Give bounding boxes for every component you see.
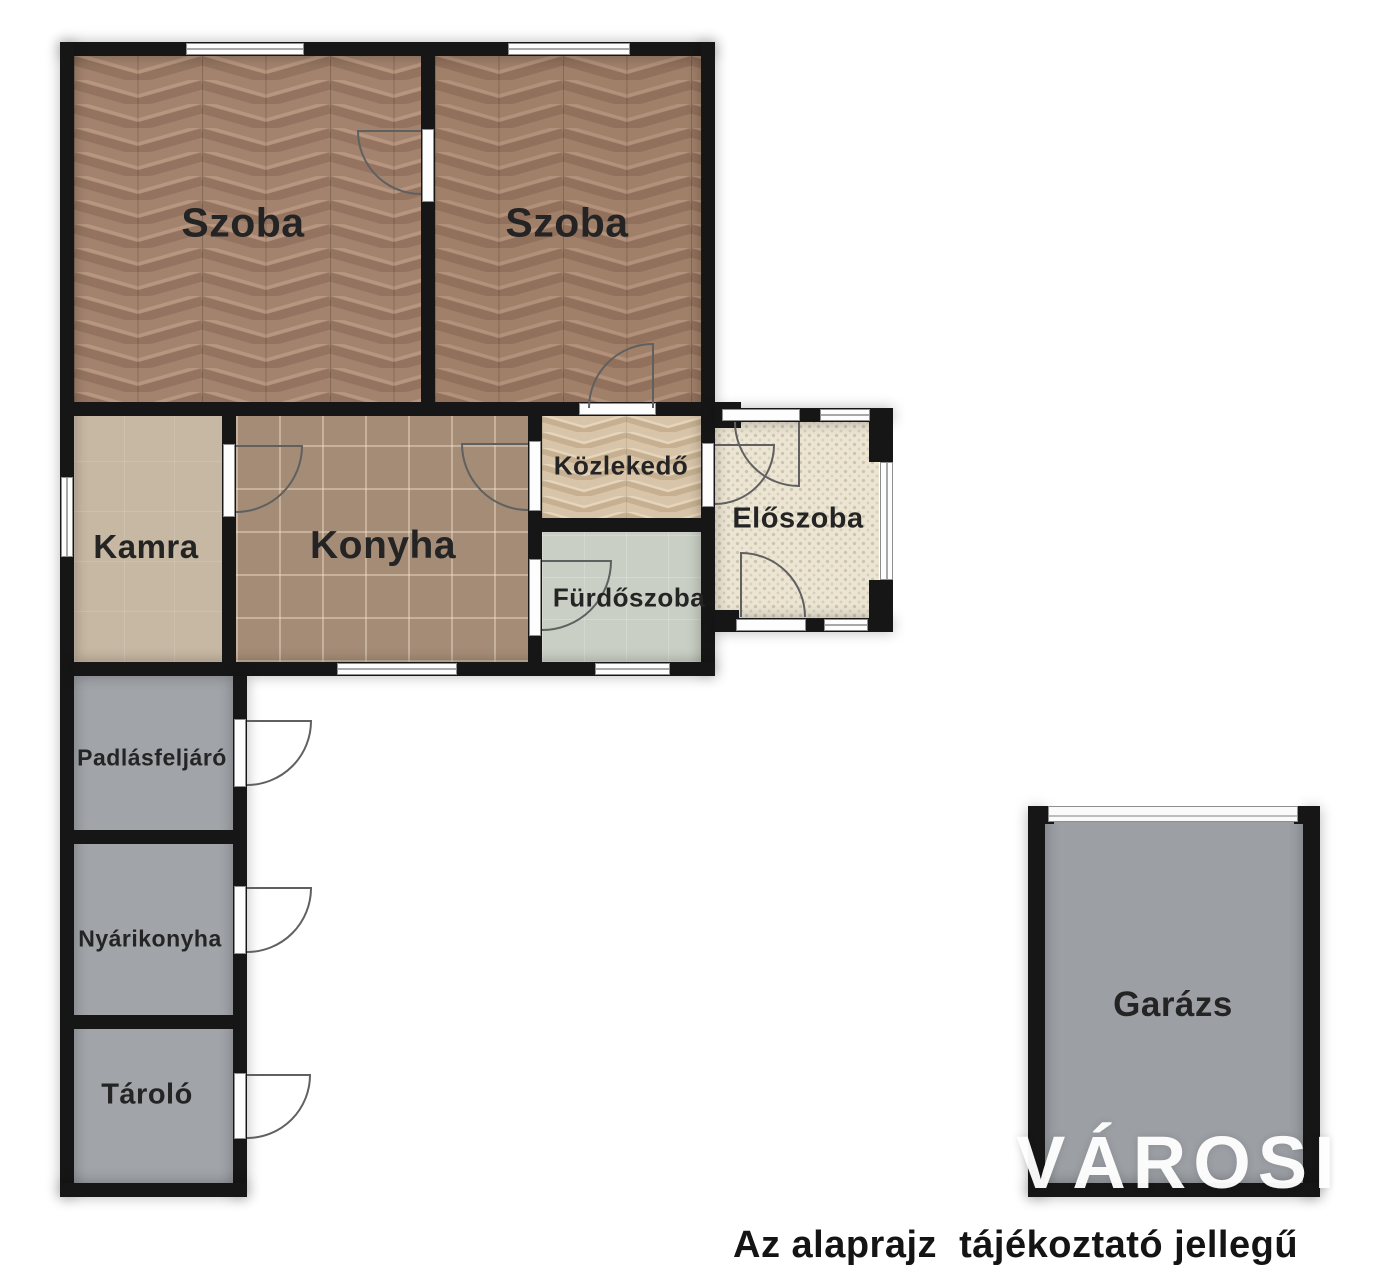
wall-kozlekedo-furdoszoba	[542, 518, 701, 532]
door-sill-nyarikonyha	[234, 886, 246, 954]
room-label-garazs: Garázs	[1113, 985, 1233, 1025]
door-sill-eloszoba-entry-top	[722, 409, 800, 421]
wall-eloszoba-corner-br	[869, 580, 893, 632]
wall-outer-right-main	[701, 42, 715, 674]
door-sill-kozlekedo-eloszoba	[702, 443, 714, 507]
wall-outer-left	[60, 42, 74, 1197]
door-sill-szoba1-szoba2	[422, 129, 434, 202]
window-szoba1-top	[186, 43, 304, 55]
wall-nyarikonyha-tarolo	[74, 1015, 233, 1029]
window-furdoszoba-bottom	[595, 663, 670, 675]
door-sill-konyha-kozlekedo	[529, 441, 541, 511]
wall-szoba-divider	[421, 56, 435, 402]
wall-padlasfeljaro-nyarikonyha	[74, 830, 233, 844]
wall-eloszoba-corner-tr	[869, 408, 893, 462]
room-label-eloszoba: Előszoba	[732, 503, 863, 536]
room-label-tarolo: Tároló	[101, 1079, 193, 1112]
room-label-konyha: Konyha	[310, 524, 456, 568]
garage-door	[1048, 806, 1298, 822]
room-label-nyarikonyha: Nyárikonyha	[78, 926, 222, 953]
wall-eloszoba-top-mid	[800, 408, 820, 422]
room-label-kozlekedo: Közlekedő	[554, 451, 689, 482]
door-swing-padlasfeljaro	[247, 721, 311, 785]
disclaimer-text: Az alaprajz tájékoztató jellegű	[733, 1224, 1298, 1267]
door-swing-tarolo	[247, 1075, 310, 1138]
room-label-szoba-1: Szoba	[181, 200, 304, 247]
watermark: VÁROSI	[1016, 1126, 1342, 1200]
room-label-furdoszoba: Fürdőszoba	[553, 583, 705, 614]
door-sill-szoba2-kozlekedo	[579, 403, 656, 415]
window-eloszoba-top	[820, 409, 870, 421]
door-swing-nyarikonyha	[247, 888, 311, 952]
wall-column-bottom	[60, 1183, 247, 1197]
window-szoba2-top	[508, 43, 630, 55]
room-label-padlasfeljaro: Padlásfeljáró	[77, 745, 227, 772]
door-sill-tarolo	[234, 1073, 246, 1139]
door-sill-konyha-furdoszoba	[529, 559, 541, 636]
door-sill-kamra-konyha	[223, 444, 235, 517]
room-label-kamra: Kamra	[93, 528, 198, 566]
floor-plan: Szoba Szoba Kamra Konyha Közlekedő Fürdő…	[0, 0, 1373, 1280]
door-sill-padlasfeljaro	[234, 719, 246, 787]
window-eloszoba-right	[880, 462, 893, 580]
window-konyha-bottom	[337, 663, 457, 675]
window-kamra-left	[61, 477, 73, 557]
door-sill-eloszoba-exit-bottom	[736, 619, 806, 631]
room-label-szoba-2: Szoba	[505, 200, 628, 247]
wall-eloszoba-bottom-mid	[806, 618, 824, 632]
window-eloszoba-bottom	[824, 619, 868, 631]
